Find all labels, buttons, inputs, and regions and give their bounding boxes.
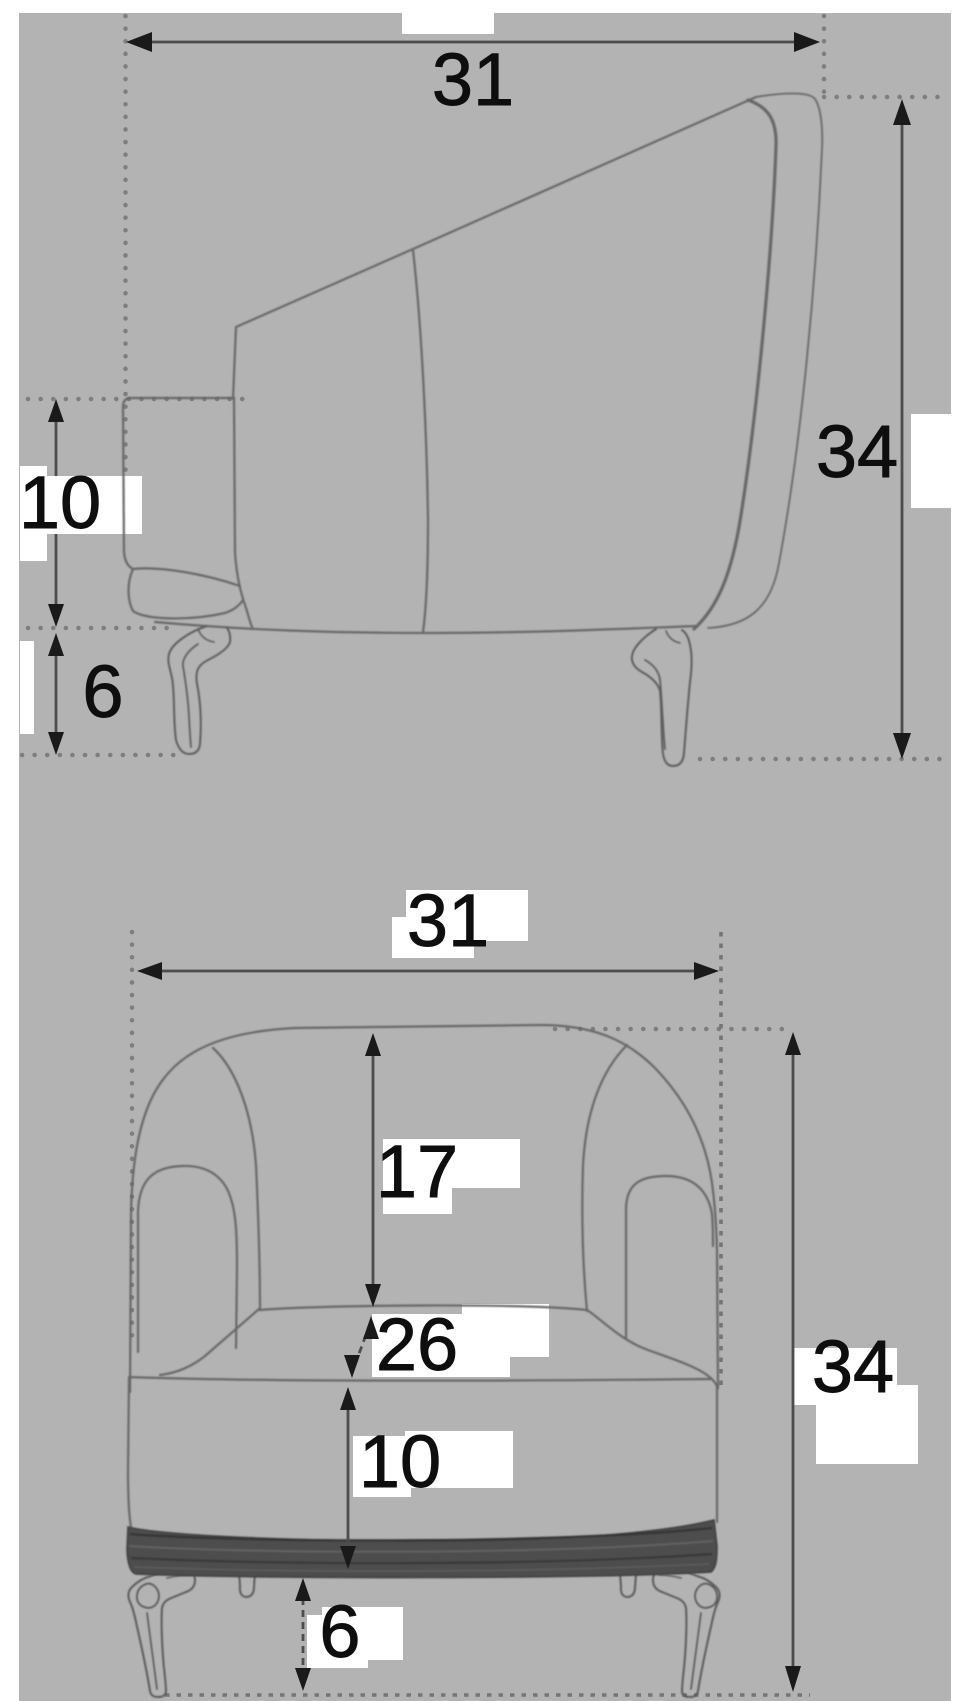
svg-text:34: 34	[812, 1325, 894, 1408]
svg-text:31: 31	[407, 879, 489, 962]
svg-text:26: 26	[376, 1303, 458, 1386]
svg-text:6: 6	[82, 650, 123, 733]
svg-text:17: 17	[376, 1130, 458, 1213]
svg-text:10: 10	[359, 1420, 441, 1503]
svg-text:31: 31	[432, 38, 514, 121]
svg-text:10: 10	[19, 461, 101, 544]
svg-text:6: 6	[319, 1590, 360, 1673]
svg-text:34: 34	[816, 410, 898, 493]
